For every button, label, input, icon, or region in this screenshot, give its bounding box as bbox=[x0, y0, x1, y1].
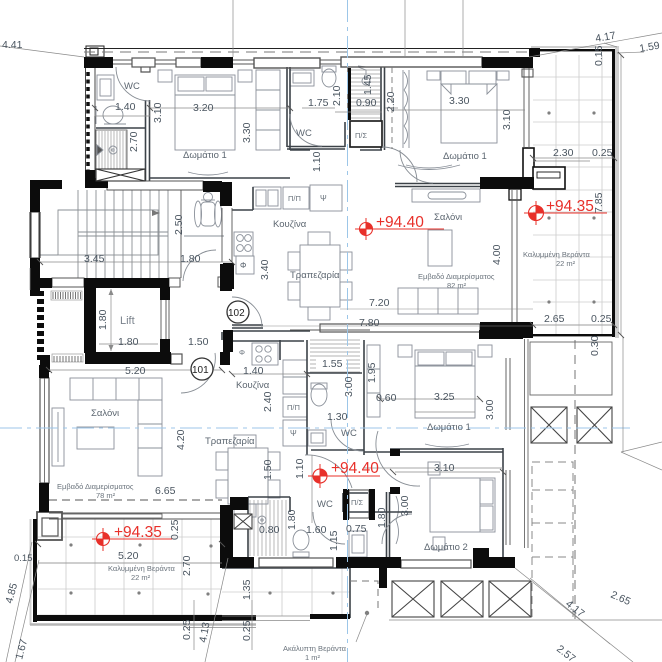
svg-text:2.30: 2.30 bbox=[553, 147, 574, 159]
svg-text:1.10: 1.10 bbox=[311, 151, 323, 172]
svg-text:Δωμάτιο 1: Δωμάτιο 1 bbox=[427, 422, 471, 433]
svg-text:0.80: 0.80 bbox=[259, 524, 280, 536]
svg-text:0.25: 0.25 bbox=[592, 147, 613, 159]
svg-text:102: 102 bbox=[228, 308, 245, 319]
svg-text:+94.35: +94.35 bbox=[114, 524, 162, 541]
svg-text:1.80: 1.80 bbox=[118, 336, 139, 348]
svg-text:Lift: Lift bbox=[120, 315, 135, 327]
svg-text:1.95: 1.95 bbox=[366, 362, 378, 383]
svg-text:Εμβαδό Διαμερίσματος: Εμβαδό Διαμερίσματος bbox=[57, 482, 134, 491]
svg-text:1.80: 1.80 bbox=[376, 507, 388, 528]
svg-text:6.65: 6.65 bbox=[155, 485, 176, 497]
svg-text:WC: WC bbox=[341, 428, 357, 439]
svg-text:7.80: 7.80 bbox=[359, 317, 380, 329]
svg-text:4.41: 4.41 bbox=[2, 39, 23, 51]
svg-text:0.25: 0.25 bbox=[241, 620, 253, 641]
svg-text:0.75: 0.75 bbox=[346, 523, 367, 535]
svg-text:78 m²: 78 m² bbox=[96, 491, 116, 500]
svg-text:1.40: 1.40 bbox=[115, 101, 136, 113]
svg-text:2.65: 2.65 bbox=[544, 313, 565, 325]
svg-text:2.70: 2.70 bbox=[128, 131, 140, 152]
svg-text:3.30: 3.30 bbox=[241, 122, 253, 143]
svg-text:1.45: 1.45 bbox=[362, 74, 374, 95]
svg-text:1.50: 1.50 bbox=[262, 459, 274, 480]
svg-text:0.25: 0.25 bbox=[591, 313, 612, 325]
svg-text:WC: WC bbox=[317, 499, 333, 510]
svg-text:Δωμάτιο 1: Δωμάτιο 1 bbox=[443, 151, 487, 162]
svg-text:4.20: 4.20 bbox=[175, 429, 187, 450]
svg-text:3.30: 3.30 bbox=[449, 95, 470, 107]
svg-text:Δωμάτιο 1: Δωμάτιο 1 bbox=[183, 150, 227, 161]
svg-text:3.10: 3.10 bbox=[434, 462, 455, 474]
svg-text:0.25: 0.25 bbox=[169, 519, 181, 540]
svg-text:1.75: 1.75 bbox=[308, 97, 329, 109]
svg-text:2.70: 2.70 bbox=[181, 555, 193, 576]
svg-text:Π/Π: Π/Π bbox=[287, 403, 300, 412]
svg-text:+94.40: +94.40 bbox=[376, 214, 424, 231]
svg-text:+94.40: +94.40 bbox=[331, 460, 379, 477]
svg-text:Σαλόνι: Σαλόνι bbox=[434, 212, 462, 223]
svg-text:101: 101 bbox=[192, 365, 209, 376]
svg-text:5.20: 5.20 bbox=[118, 550, 139, 562]
svg-text:1.80: 1.80 bbox=[97, 309, 109, 330]
svg-text:1.10: 1.10 bbox=[294, 458, 306, 479]
svg-text:3.00: 3.00 bbox=[484, 399, 496, 420]
svg-text:82 m²: 82 m² bbox=[447, 281, 467, 290]
svg-text:Τραπεζαρία: Τραπεζαρία bbox=[205, 436, 255, 447]
svg-text:1.35: 1.35 bbox=[241, 579, 253, 600]
svg-text:Ακάλυπτη Βεράντα: Ακάλυπτη Βεράντα bbox=[283, 644, 347, 653]
svg-text:Π/Π: Π/Π bbox=[288, 194, 301, 203]
svg-text:0.30: 0.30 bbox=[589, 335, 601, 356]
svg-text:3.45: 3.45 bbox=[84, 253, 105, 265]
svg-text:Τραπεζαρία: Τραπεζαρία bbox=[290, 270, 340, 281]
svg-text:WC: WC bbox=[124, 81, 140, 92]
svg-text:Δωμάτιο 2: Δωμάτιο 2 bbox=[424, 542, 468, 553]
svg-text:3.25: 3.25 bbox=[434, 391, 455, 403]
svg-text:0.15: 0.15 bbox=[593, 45, 605, 66]
svg-text:Φ: Φ bbox=[239, 348, 245, 357]
svg-text:Εμβαδό Διαμερίσματος: Εμβαδό Διαμερίσματος bbox=[418, 272, 495, 281]
svg-text:Κουζίνα: Κουζίνα bbox=[236, 380, 270, 391]
svg-text:22 m²: 22 m² bbox=[556, 259, 576, 268]
svg-text:+94.35: +94.35 bbox=[546, 198, 594, 215]
svg-text:Ψ: Ψ bbox=[290, 429, 297, 438]
svg-text:Καλυμμένη Βεράντα: Καλυμμένη Βεράντα bbox=[523, 250, 590, 259]
svg-text:Κουζίνα: Κουζίνα bbox=[273, 219, 307, 230]
svg-text:0.60: 0.60 bbox=[376, 392, 397, 404]
svg-text:22 m²: 22 m² bbox=[131, 573, 151, 582]
svg-text:1.80: 1.80 bbox=[180, 253, 201, 265]
svg-text:Σαλόνι: Σαλόνι bbox=[91, 408, 119, 419]
svg-text:Φ: Φ bbox=[240, 261, 246, 270]
svg-text:Καλυμμένη Βεράντα: Καλυμμένη Βεράντα bbox=[108, 564, 175, 573]
svg-text:1.60: 1.60 bbox=[306, 524, 327, 536]
svg-text:3.00: 3.00 bbox=[399, 495, 411, 516]
svg-text:1.30: 1.30 bbox=[327, 411, 348, 423]
svg-text:1.15: 1.15 bbox=[328, 530, 340, 551]
svg-text:3.20: 3.20 bbox=[193, 102, 214, 114]
svg-text:2.50: 2.50 bbox=[173, 214, 185, 235]
svg-text:0.90: 0.90 bbox=[356, 97, 377, 109]
svg-text:2.20: 2.20 bbox=[385, 91, 397, 112]
svg-text:2.10: 2.10 bbox=[331, 85, 343, 106]
svg-text:5.20: 5.20 bbox=[125, 365, 146, 377]
svg-text:0.15: 0.15 bbox=[14, 553, 33, 564]
svg-text:1 m²: 1 m² bbox=[305, 653, 321, 662]
svg-text:1.40: 1.40 bbox=[243, 365, 264, 377]
svg-text:3.00: 3.00 bbox=[343, 376, 355, 397]
svg-text:0.25: 0.25 bbox=[181, 619, 193, 640]
svg-text:3.10: 3.10 bbox=[152, 102, 164, 123]
svg-text:7.20: 7.20 bbox=[369, 297, 390, 309]
svg-text:1.80: 1.80 bbox=[286, 509, 298, 530]
svg-text:2.40: 2.40 bbox=[262, 391, 274, 412]
svg-text:4.00: 4.00 bbox=[491, 244, 503, 265]
svg-text:1.55: 1.55 bbox=[322, 358, 343, 370]
svg-text:Ψ: Ψ bbox=[320, 194, 327, 203]
svg-text:Π/Σ: Π/Σ bbox=[355, 131, 368, 140]
svg-text:Π/Σ: Π/Σ bbox=[351, 498, 364, 507]
svg-text:1.50: 1.50 bbox=[188, 336, 209, 348]
svg-text:WC: WC bbox=[296, 128, 312, 139]
svg-text:3.10: 3.10 bbox=[501, 109, 513, 130]
svg-text:7.85: 7.85 bbox=[593, 192, 605, 213]
svg-text:3.40: 3.40 bbox=[259, 259, 271, 280]
